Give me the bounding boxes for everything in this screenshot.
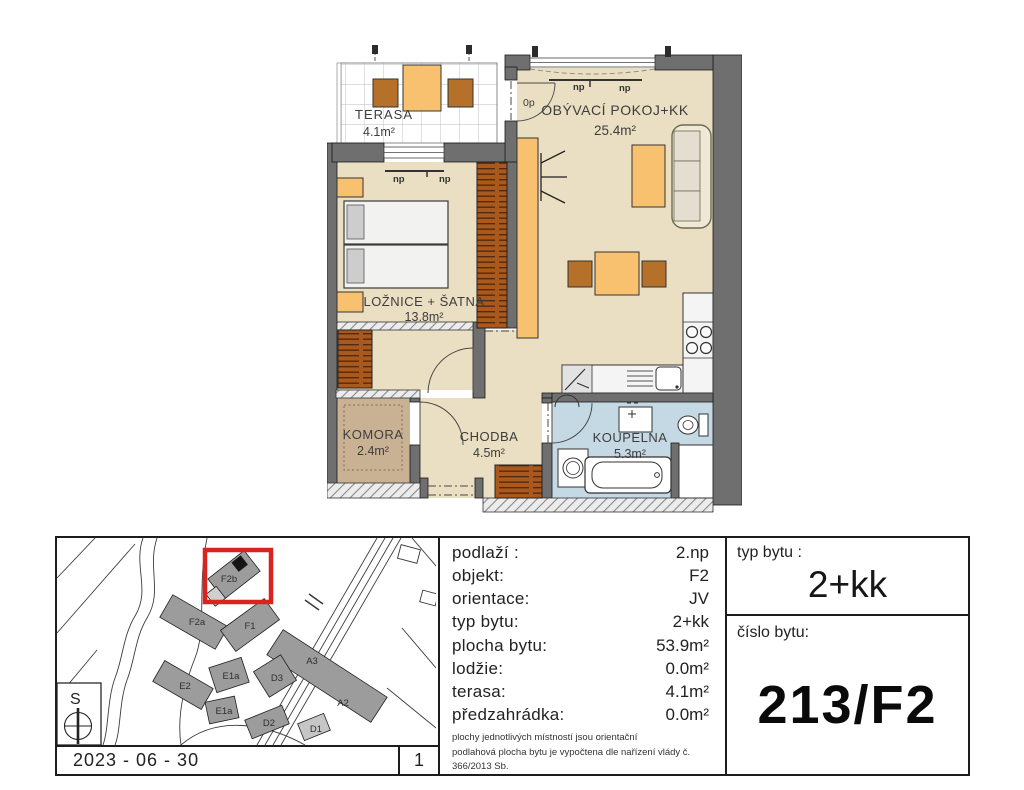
terrace-table (403, 65, 441, 111)
info-value: F2 (689, 566, 709, 586)
np-annotation: np (573, 82, 585, 93)
site-map: F2b F2a F1 E1a E1a E2 D3 D2 D1 A3 A2 S (57, 538, 438, 745)
room-label-koupelna: KOUPELNA (593, 430, 668, 445)
unit-number-label: číslo bytu: (737, 624, 809, 642)
coffee-table (632, 145, 665, 207)
site-map-cell: F2b F2a F1 E1a E1a E2 D3 D2 D1 A3 A2 S (57, 538, 440, 774)
nightstand (337, 178, 363, 197)
hall-upper-floor (485, 330, 542, 398)
info-row-typ-bytu: typ bytu: 2+kk (440, 612, 725, 635)
info-value: 0.0m² (666, 659, 709, 679)
np-annotation: np (439, 174, 451, 185)
door-annotation-0p: 0p (523, 97, 535, 109)
unit-type-label: typ bytu : (737, 544, 802, 562)
compass-north-label: S (70, 691, 81, 708)
room-area-obyvaci: 25.4m² (594, 123, 637, 138)
room-label-loznice: LOŽNICE + ŠATNA (363, 294, 484, 309)
map-context-buildings (398, 545, 436, 606)
shaft-niche (679, 445, 713, 498)
info-row-objekt: objekt: F2 (440, 566, 725, 589)
building-label: F2a (189, 617, 206, 628)
toilet-icon (699, 414, 708, 436)
info-table: podlaží : 2.np objekt: F2 orientace: JV … (440, 538, 727, 774)
room-area-loznice: 13.8m² (405, 310, 444, 324)
footnote-line: podlahová plocha bytu je vypočtena dle n… (452, 746, 715, 775)
info-value: 0.0m² (666, 705, 709, 725)
unit-type-value: 2+kk (727, 564, 968, 606)
unit-number-box: číslo bytu: 213/F2 (727, 616, 968, 774)
building-label: D1 (310, 724, 322, 735)
building-label: D2 (263, 718, 275, 729)
info-label: objekt: (452, 566, 504, 586)
info-row-podlazi: podlaží : 2.np (440, 543, 725, 566)
info-label: předzahrádka: (452, 705, 565, 725)
closet-wardrobe (338, 330, 372, 388)
info-label: plocha bytu: (452, 636, 547, 656)
info-row-lodzie: lodžie: 0.0m² (440, 659, 725, 682)
room-area-chodba: 4.5m² (473, 446, 505, 460)
drawing-date: 2023 - 06 - 30 (57, 750, 398, 771)
nightstand (337, 292, 363, 312)
room-area-koupelna: 5.3m² (614, 447, 646, 461)
room-label-obyvaci: OBÝVACÍ POKOJ+KK (541, 102, 689, 118)
floor-plan-drawing: TERASA 4.1m² OBÝVACÍ POKOJ+KK 25.4m² LOŽ… (327, 45, 742, 515)
tv-sideboard (517, 138, 538, 338)
info-value: JV (689, 589, 709, 609)
shoe-cabinet (495, 465, 542, 498)
floor-plan: TERASA 4.1m² OBÝVACÍ POKOJ+KK 25.4m² LOŽ… (327, 45, 742, 515)
compass-icon: S (57, 683, 101, 745)
footnote-line: plochy jednotlivých místností jsou orien… (452, 731, 715, 745)
info-row-terasa: terasa: 4.1m² (440, 682, 725, 705)
room-label-komora: KOMORA (343, 427, 404, 442)
info-label: typ bytu: (452, 612, 519, 632)
dining-table (595, 252, 639, 295)
info-label: terasa: (452, 682, 506, 702)
floor-plan-sheet: { "floor_plan": { "rooms": [ {"name": "T… (0, 0, 1024, 790)
footnotes: plochy jednotlivých místností jsou orien… (440, 731, 725, 774)
summary-cell: typ bytu : 2+kk číslo bytu: 213/F2 (727, 538, 968, 774)
pillow (347, 205, 364, 239)
info-row-orientace: orientace: JV (440, 589, 725, 612)
room-label-chodba: CHODBA (460, 429, 519, 444)
room-area-terasa: 4.1m² (363, 125, 395, 139)
sheet-number: 1 (398, 747, 438, 774)
title-block-panel: F2b F2a F1 E1a E1a E2 D3 D2 D1 A3 A2 S (55, 536, 970, 776)
building-label: D3 (271, 673, 283, 684)
building-label: A3 (306, 656, 318, 667)
terrace-chair (448, 79, 473, 107)
info-label: orientace: (452, 589, 530, 609)
info-label: podlaží : (452, 543, 519, 563)
np-annotation: np (619, 83, 631, 94)
np-annotation: np (393, 174, 405, 185)
room-label-terasa: TERASA (355, 107, 413, 122)
washbasin-icon (619, 407, 652, 432)
date-row: 2023 - 06 - 30 1 (57, 745, 438, 774)
info-value: 53.9m² (656, 636, 709, 656)
info-row-plocha: plocha bytu: 53.9m² (440, 636, 725, 659)
building-label: E2 (179, 681, 191, 692)
info-value: 2.np (676, 543, 709, 563)
site-map-drawing: F2b F2a F1 E1a E1a E2 D3 D2 D1 A3 A2 S (57, 538, 436, 745)
info-value: 2+kk (673, 612, 709, 632)
building-label: A2 (337, 698, 349, 709)
unit-type-box: typ bytu : 2+kk (727, 538, 968, 616)
pillow (347, 249, 364, 283)
dining-chair (642, 261, 666, 287)
room-area-komora: 2.4m² (357, 444, 389, 458)
info-value: 4.1m² (666, 682, 709, 702)
dining-chair (568, 261, 592, 287)
building-label: E1a (223, 671, 241, 682)
info-row-predzahradka: předzahrádka: 0.0m² (440, 705, 725, 728)
unit-number-value: 213/F2 (727, 674, 968, 736)
terrace-chair (373, 79, 398, 107)
info-label: lodžie: (452, 659, 503, 679)
building-label: F2b (221, 574, 237, 585)
building-label: F1 (244, 621, 255, 632)
building-label: E1a (216, 706, 234, 717)
